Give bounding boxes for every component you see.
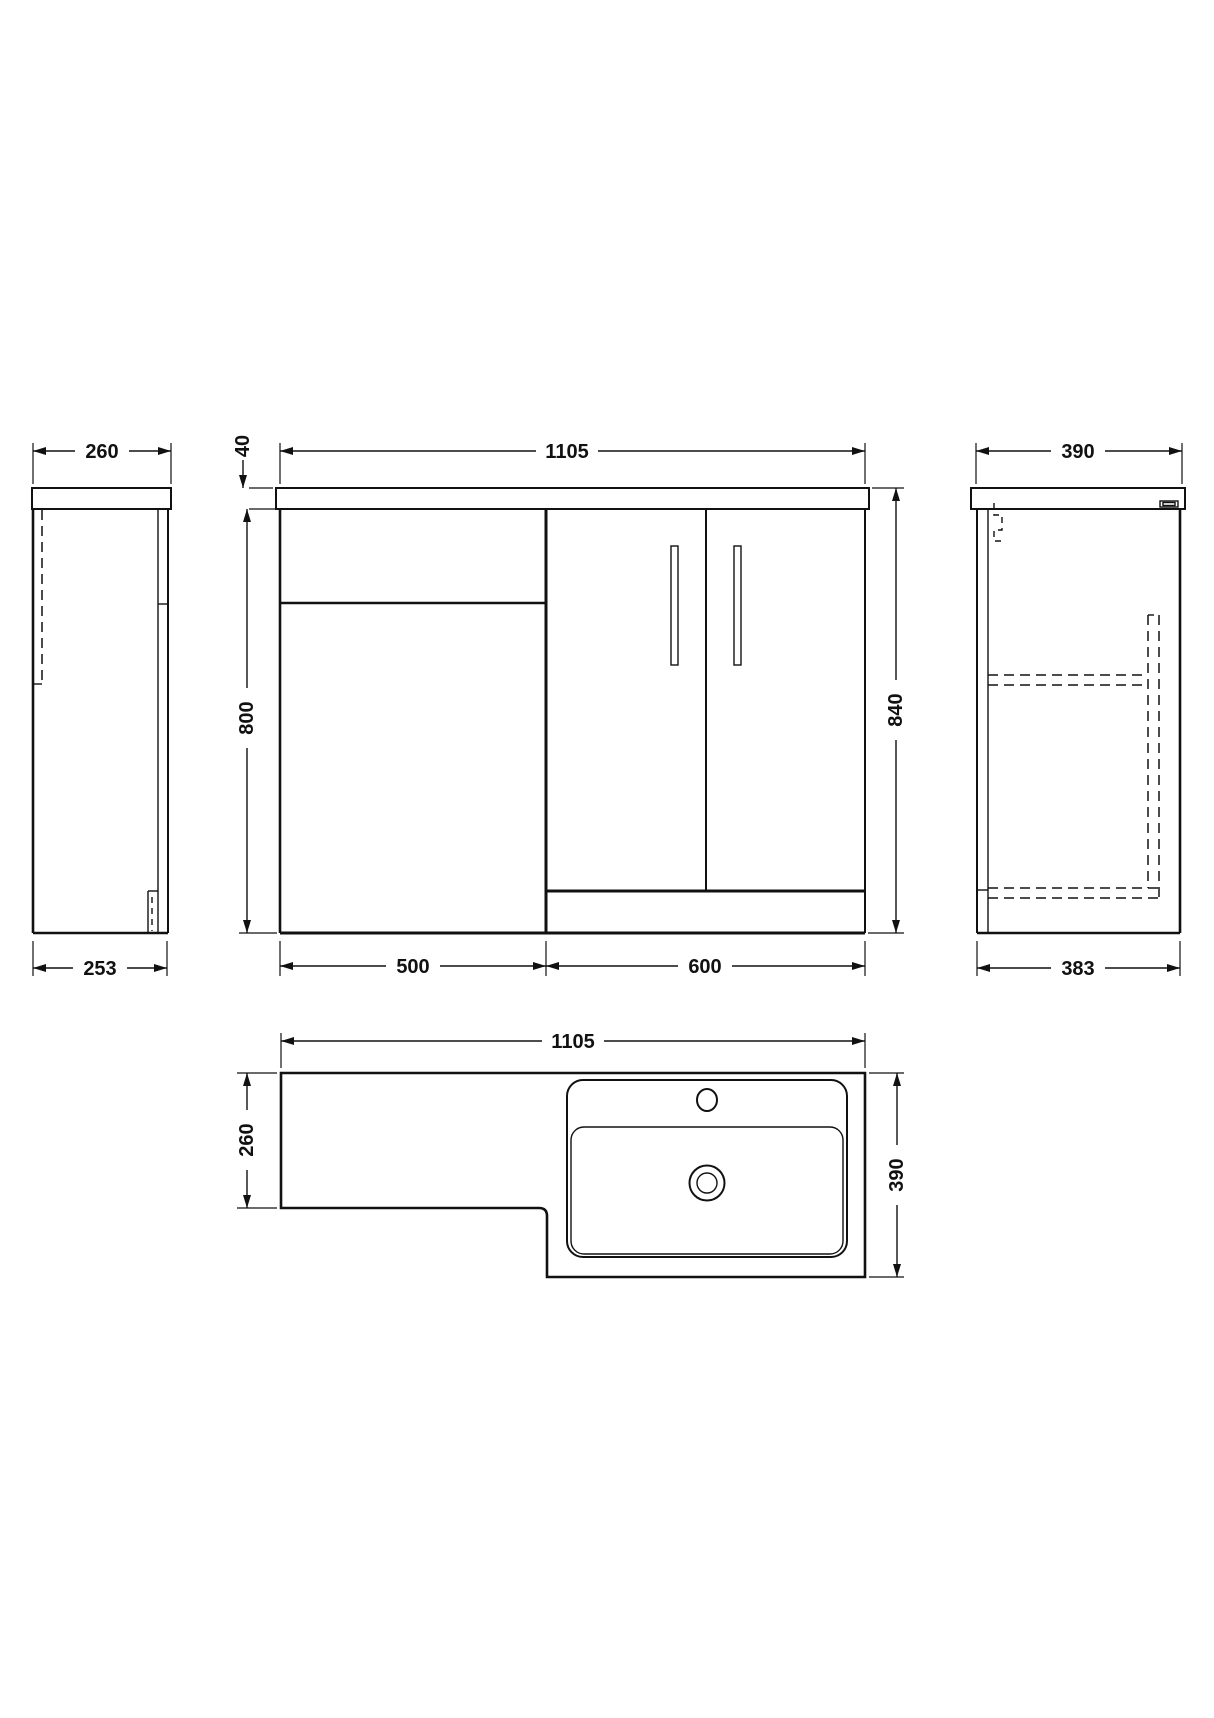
dim-plan-right-depth-390: 390 bbox=[869, 1073, 909, 1277]
carcass-front bbox=[280, 509, 865, 933]
technical-drawing: 260 253 bbox=[0, 0, 1214, 1718]
door-handle-left bbox=[671, 546, 678, 665]
hidden-back-panel bbox=[1148, 615, 1159, 898]
plan-view: 1105 260 bbox=[235, 1031, 909, 1277]
dim-label-260-plan: 260 bbox=[236, 1123, 258, 1156]
basin-unit-doors bbox=[546, 509, 865, 891]
dim-plan-overall-width-1105: 1105 bbox=[281, 1031, 865, 1068]
dim-right-top-390: 390 bbox=[976, 441, 1182, 484]
dim-label-800: 800 bbox=[236, 701, 258, 734]
hidden-shelf-mid bbox=[988, 675, 1148, 685]
tap-hole bbox=[697, 1089, 717, 1111]
dim-label-383: 383 bbox=[1061, 958, 1094, 980]
dim-label-253: 253 bbox=[83, 958, 116, 980]
hidden-shelf-bottom bbox=[988, 888, 1158, 898]
worktop-plan-outline bbox=[281, 1073, 865, 1277]
fixing-bracket-detail bbox=[1160, 501, 1178, 507]
dim-label-40: 40 bbox=[232, 435, 254, 457]
waste-drain bbox=[690, 1166, 725, 1201]
hidden-cistern-lines bbox=[33, 510, 42, 684]
dim-label-840: 840 bbox=[885, 693, 907, 726]
worktop-right-end bbox=[971, 488, 1185, 509]
dim-left-top-260: 260 bbox=[33, 441, 171, 484]
dim-label-1105-plan: 1105 bbox=[551, 1031, 594, 1053]
dim-label-1105-front: 1105 bbox=[545, 441, 588, 463]
drawing-sheet: 260 253 bbox=[0, 0, 1214, 1718]
dim-label-390-plan: 390 bbox=[886, 1158, 908, 1191]
dim-overall-height-840: 840 bbox=[868, 488, 908, 933]
right-end-view: 390 bbox=[971, 441, 1185, 980]
door-handle-right bbox=[734, 546, 741, 665]
dim-label-390-right: 390 bbox=[1061, 441, 1094, 463]
left-end-view: 260 253 bbox=[32, 441, 171, 980]
basin bbox=[567, 1080, 847, 1257]
dim-label-500: 500 bbox=[396, 956, 429, 978]
dim-carcass-height-800: 800 bbox=[235, 509, 277, 933]
dim-front-overall-width-1105: 1105 bbox=[280, 441, 865, 484]
dim-right-bottom-383: 383 bbox=[977, 941, 1180, 980]
dim-unit-widths-500-600: 500 600 bbox=[280, 941, 865, 978]
dim-label-260-left: 260 bbox=[85, 441, 118, 463]
dim-worktop-thickness-40: 40 bbox=[232, 435, 277, 509]
worktop-front bbox=[276, 488, 869, 509]
carcass-left-end bbox=[33, 509, 168, 933]
basin-inner-bowl bbox=[571, 1127, 843, 1254]
dim-left-bottom-253: 253 bbox=[33, 941, 167, 980]
front-view: 1105 40 800 bbox=[232, 435, 908, 978]
worktop-left-end bbox=[32, 488, 171, 509]
carcass-right-end bbox=[977, 509, 1180, 933]
basin-outer-rim bbox=[567, 1080, 847, 1257]
plinth-recess-detail-left bbox=[148, 891, 158, 933]
dim-plan-left-depth-260: 260 bbox=[235, 1073, 277, 1208]
dim-label-600: 600 bbox=[688, 956, 721, 978]
